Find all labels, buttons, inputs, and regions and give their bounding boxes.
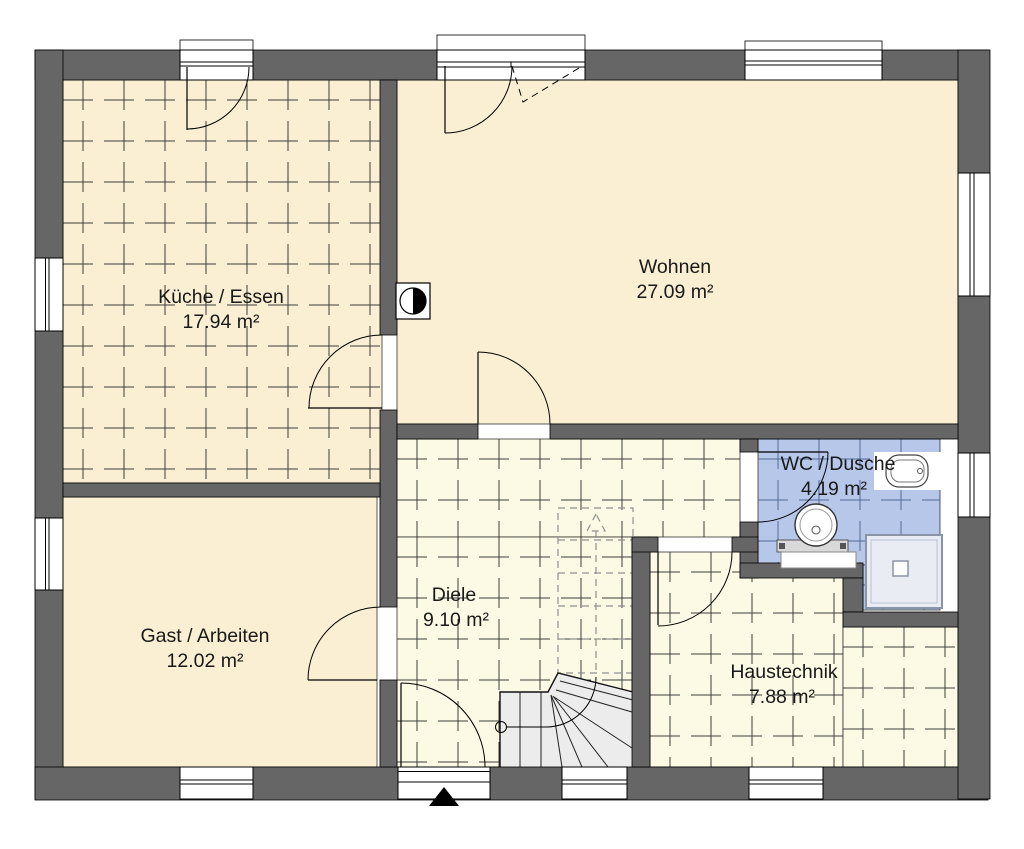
stair-bottom-window [562,767,627,799]
floorplan-canvas: Küche / Essen 17.94 m² Wohnen 27.09 m² G… [0,0,1024,849]
floor-plan-page: Küche / Essen 17.94 m² Wohnen 27.09 m² G… [0,0,1024,849]
room-area-gast: 12.02 m² [167,650,244,672]
wall-haustechnik-north-left [632,537,658,552]
wall-shower-niche-west [843,578,863,612]
shower-tray-icon [866,535,942,608]
wall-shower-niche-south [843,612,958,627]
room-label-wc: WC / Dusche [781,453,896,475]
wall-exterior-bottom [35,767,988,800]
gast-bottom-window [180,767,253,799]
haustechnik-floor-left [650,552,843,767]
room-area-haustechnik: 7.88 m² [749,686,816,708]
wall-exterior-right [958,50,990,799]
wall-kueche-gast [63,483,380,497]
wohnen-floor [397,80,958,424]
diele-floor-upper [397,439,740,537]
room-label-haustechnik: Haustechnik [730,661,838,683]
room-label-kueche: Küche / Essen [158,286,284,308]
wall-wohnen-diele-left [397,424,478,439]
wall-gast-east-lower [380,680,397,767]
haustechnik-floor-right [843,627,958,767]
wohnen-top-window-sill [745,41,882,50]
kueche-floor [63,80,382,483]
haustechnik-bottom-window [749,767,823,799]
wall-exterior-left [35,50,63,799]
wall-haustechnik-north-right [732,537,758,552]
room-area-diele: 9.10 m² [423,609,490,631]
wall-wc-west-upper [740,439,758,452]
wall-wohnen-diele-right [550,424,958,439]
kueche-terrace-door-opening [180,50,253,80]
room-label-gast: Gast / Arbeiten [141,625,270,647]
room-label-diele: Diele [432,584,476,606]
wall-kueche-east-upper [380,80,397,335]
room-area-wc: 4.19 m² [801,478,868,500]
room-area-kueche: 17.94 m² [183,311,260,333]
kueche-terrace-door-sill [180,40,253,50]
wall-kueche-east-lower [380,410,397,607]
wall-diele-haustechnik [632,537,650,767]
room-area-wohnen: 27.09 m² [637,281,714,303]
wohnen-terrace-door-sill [437,35,585,50]
room-label-wohnen: Wohnen [639,256,711,278]
chimney-icon [396,283,430,319]
